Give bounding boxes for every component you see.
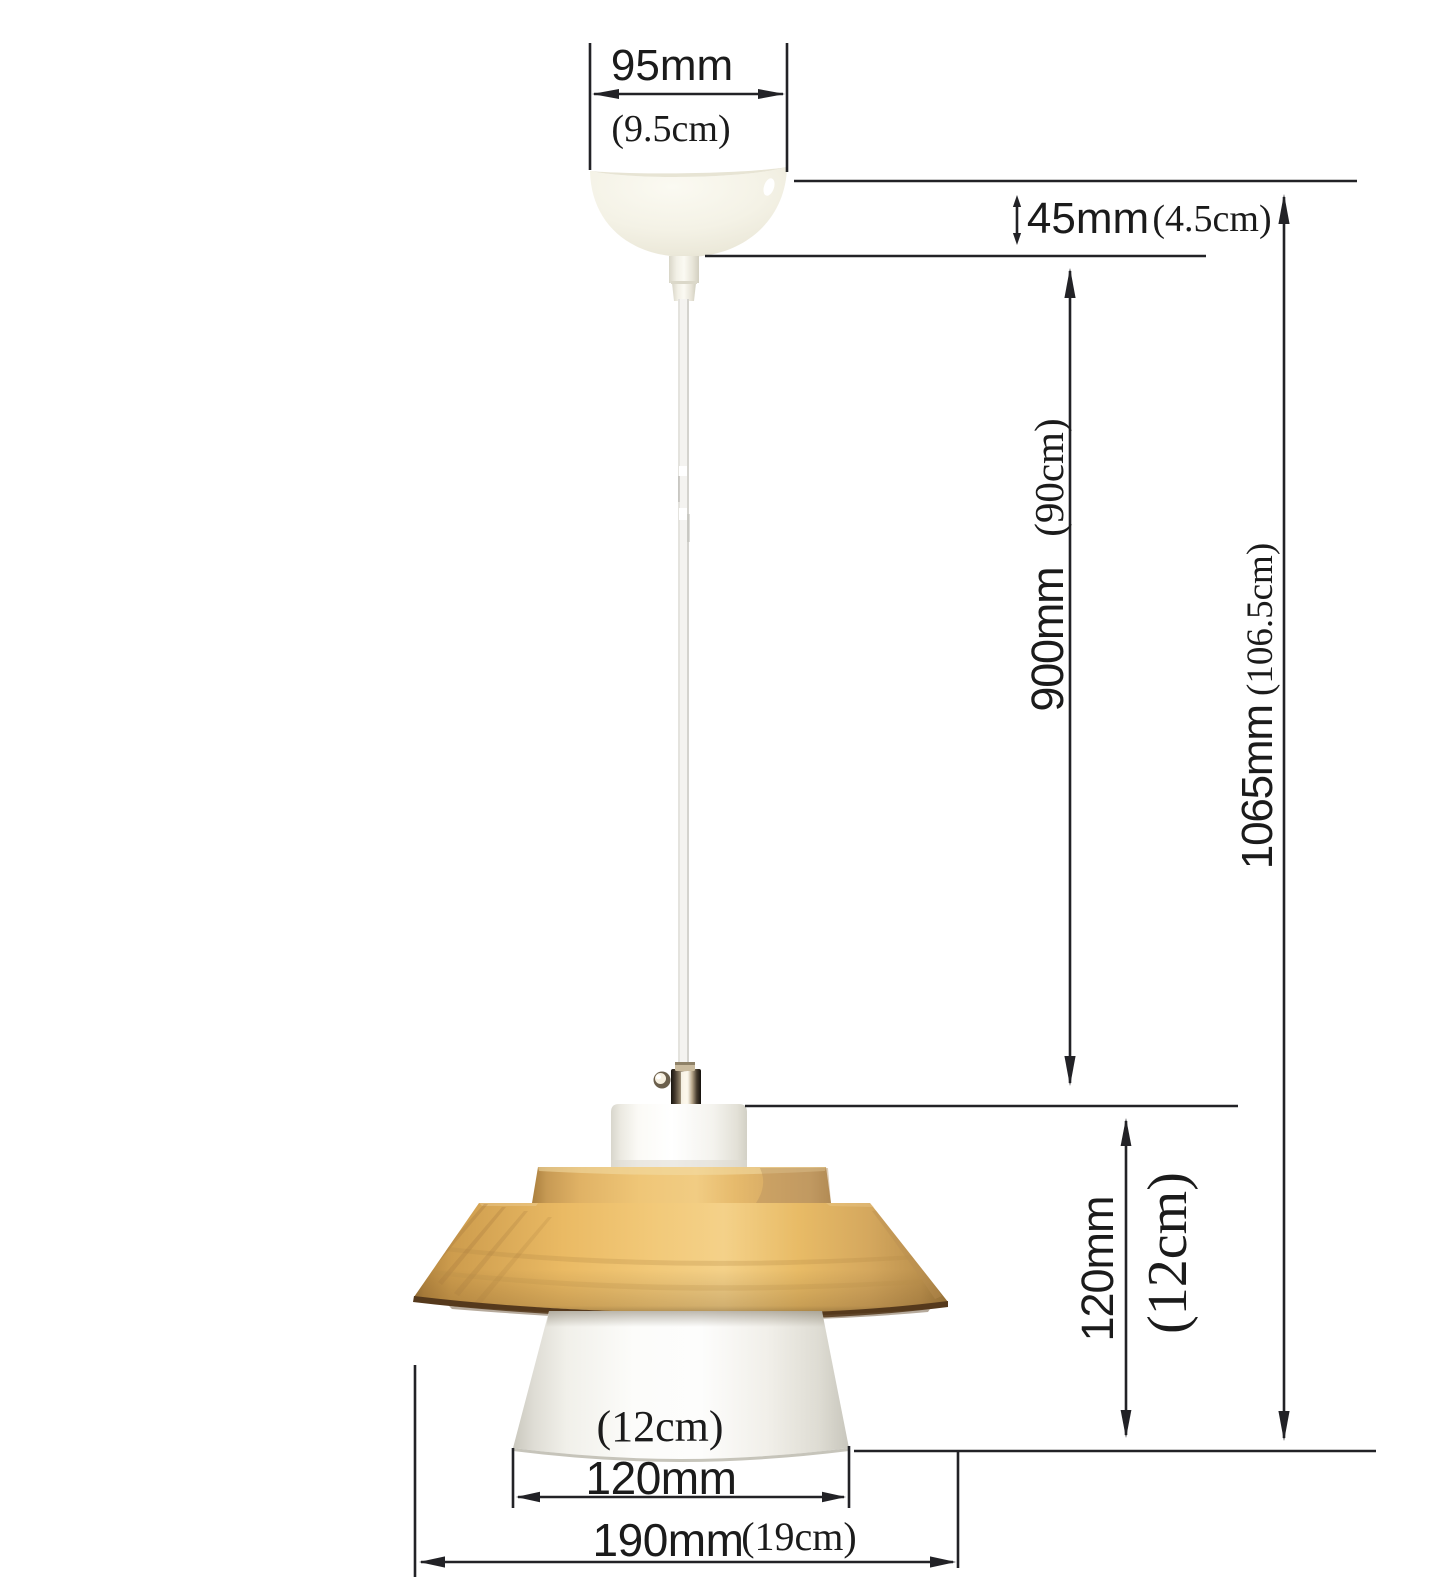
svg-text:1065mm (106.5cm): 1065mm (106.5cm)	[1233, 543, 1282, 869]
svg-text:(12cm): (12cm)	[1137, 1172, 1199, 1334]
svg-text:95mm: 95mm	[611, 41, 733, 90]
svg-text:190mm: 190mm	[593, 1514, 744, 1566]
svg-text:(19cm): (19cm)	[741, 1514, 857, 1559]
svg-text:900mm (90cm): 900mm (90cm)	[1022, 418, 1073, 711]
svg-text:(9.5cm): (9.5cm)	[611, 108, 730, 150]
svg-text:120mm: 120mm	[1072, 1196, 1123, 1341]
svg-text:120mm: 120mm	[586, 1452, 737, 1504]
svg-text:(4.5cm): (4.5cm)	[1152, 198, 1271, 240]
svg-text:(12cm): (12cm)	[596, 1402, 723, 1451]
svg-text:45mm: 45mm	[1027, 194, 1149, 243]
